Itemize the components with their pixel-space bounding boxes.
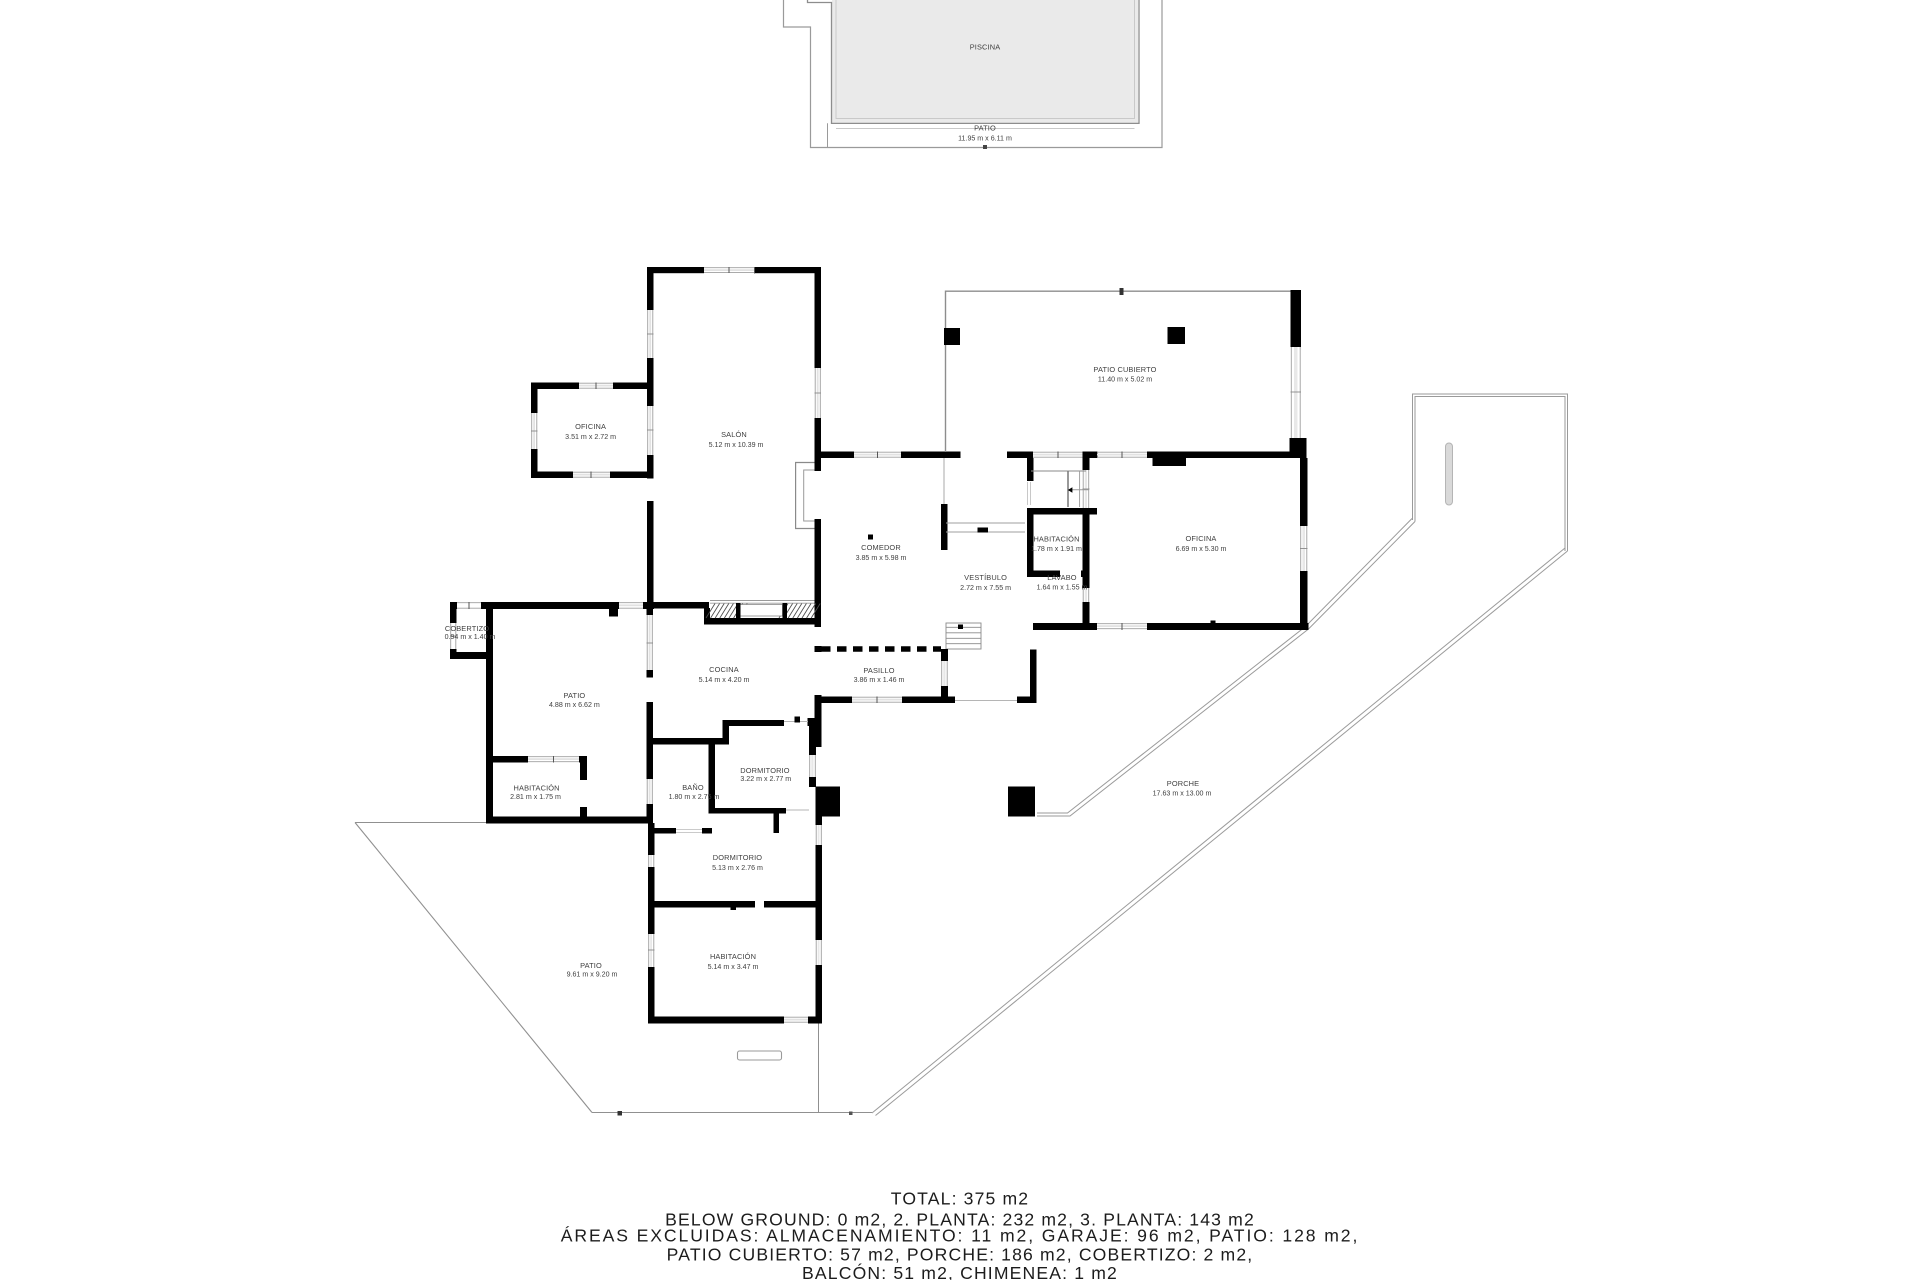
svg-text:PATIO CUBIERTO: 57 m2, PORCHE:: PATIO CUBIERTO: 57 m2, PORCHE: 186 m2, C… xyxy=(667,1245,1254,1265)
svg-text:DORMITORIO: DORMITORIO xyxy=(713,853,763,862)
svg-text:17.63 m x 13.00 m: 17.63 m x 13.00 m xyxy=(1153,789,1212,797)
svg-text:VESTÍBULO: VESTÍBULO xyxy=(964,573,1007,582)
svg-text:6.69 m x 5.30 m: 6.69 m x 5.30 m xyxy=(1176,545,1227,553)
svg-text:5.14 m x 4.20 m: 5.14 m x 4.20 m xyxy=(699,676,750,684)
svg-text:TOTAL: 375 m2: TOTAL: 375 m2 xyxy=(891,1189,1029,1209)
svg-text:5.12 m x 10.39 m: 5.12 m x 10.39 m xyxy=(709,441,764,449)
svg-text:2.81 m x 1.75 m: 2.81 m x 1.75 m xyxy=(510,793,561,801)
svg-text:PATIO CUBIERTO: PATIO CUBIERTO xyxy=(1093,365,1156,374)
svg-text:COBERTIZO: COBERTIZO xyxy=(445,624,489,633)
svg-text:3.22 m x 2.77 m: 3.22 m x 2.77 m xyxy=(740,775,791,783)
svg-text:PATIO: PATIO xyxy=(974,124,996,133)
svg-text:1.80 m x 2.75 m: 1.80 m x 2.75 m xyxy=(669,793,720,801)
svg-text:2.72 m x 7.55 m: 2.72 m x 7.55 m xyxy=(960,584,1011,592)
svg-text:HABITACIÓN: HABITACIÓN xyxy=(710,952,756,961)
svg-text:BAÑO: BAÑO xyxy=(682,783,704,792)
svg-text:PISCINA: PISCINA xyxy=(970,43,1001,52)
svg-text:5.14 m x 3.47 m: 5.14 m x 3.47 m xyxy=(708,963,759,971)
svg-text:11.95 m x 6.11 m: 11.95 m x 6.11 m xyxy=(958,135,1012,143)
svg-text:PORCHE: PORCHE xyxy=(1167,779,1200,788)
svg-text:SALÓN: SALÓN xyxy=(721,430,747,439)
svg-text:COCINA: COCINA xyxy=(709,665,739,674)
svg-text:5.13 m x 2.76 m: 5.13 m x 2.76 m xyxy=(712,864,763,872)
svg-text:ÁREAS EXCLUIDAS: ALMACENAMIENT: ÁREAS EXCLUIDAS: ALMACENAMIENTO: 11 m2, … xyxy=(561,1226,1360,1246)
svg-text:OFICINA: OFICINA xyxy=(575,422,606,431)
svg-text:DORMITORIO: DORMITORIO xyxy=(740,766,790,775)
svg-text:HABITACIÓN: HABITACIÓN xyxy=(514,783,560,792)
svg-text:OFICINA: OFICINA xyxy=(1185,534,1216,543)
svg-text:0.94 m x 1.40 m: 0.94 m x 1.40 m xyxy=(445,633,496,641)
svg-text:1.78 m x 1.91 m: 1.78 m x 1.91 m xyxy=(1031,545,1082,553)
svg-text:3.85 m x 5.98 m: 3.85 m x 5.98 m xyxy=(856,554,907,562)
svg-text:PATIO: PATIO xyxy=(563,691,585,700)
svg-text:9.61 m x 9.20 m: 9.61 m x 9.20 m xyxy=(567,970,618,978)
svg-text:1.64 m x 1.55 m: 1.64 m x 1.55 m xyxy=(1037,583,1088,591)
svg-text:4.88 m x 6.62 m: 4.88 m x 6.62 m xyxy=(549,701,600,709)
svg-text:COMEDOR: COMEDOR xyxy=(861,543,901,552)
svg-text:LAVABO: LAVABO xyxy=(1047,573,1076,582)
svg-text:3.51 m x 2.72 m: 3.51 m x 2.72 m xyxy=(565,433,616,441)
svg-text:11.40 m x 5.02 m: 11.40 m x 5.02 m xyxy=(1098,375,1152,383)
svg-text:3.86 m x 1.46 m: 3.86 m x 1.46 m xyxy=(854,676,905,684)
svg-text:PATIO: PATIO xyxy=(580,961,602,970)
svg-text:HABITACIÓN: HABITACIÓN xyxy=(1033,535,1079,544)
svg-text:PASILLO: PASILLO xyxy=(863,666,894,675)
svg-text:BALCÓN: 51 m2, CHIMENEA: 1 m2: BALCÓN: 51 m2, CHIMENEA: 1 m2 xyxy=(802,1262,1118,1280)
